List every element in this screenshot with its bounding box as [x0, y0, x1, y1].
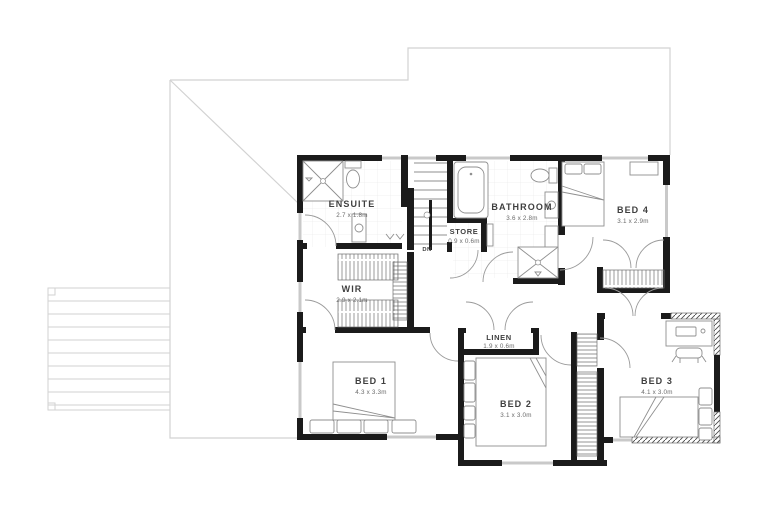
linen-door-right	[505, 302, 533, 330]
bathroom-shower	[518, 247, 558, 278]
room-label-linen: LINEN 1.9 x 0.6m	[483, 333, 514, 350]
bed1	[310, 362, 416, 433]
bathroom-toilet	[531, 168, 557, 183]
wir-name: WIR	[342, 284, 363, 294]
floor-plan-svg: DN	[0, 0, 768, 512]
bed2-name: BED 2	[500, 399, 532, 409]
bed2-dims: 3.1 x 3.0m	[500, 412, 531, 419]
bed3-desk	[666, 321, 712, 363]
bed4-robe-door-left	[603, 240, 631, 268]
room-label-wir: WIR 2.9 x 2.1m	[336, 284, 367, 304]
bed4-name: BED 4	[617, 205, 649, 215]
room-label-bed4: BED 4 3.1 x 2.9m	[617, 205, 649, 225]
linen-door-left	[466, 302, 494, 330]
wir-robe-bottom	[338, 300, 398, 327]
bed3-dims: 4.1 x 3.0m	[641, 389, 672, 396]
linen-name: LINEN	[486, 333, 512, 342]
bed3-robe-upper	[577, 334, 597, 366]
wir-dims: 2.9 x 2.1m	[336, 297, 367, 304]
ensuite-name: ENSUITE	[329, 199, 376, 209]
deck	[48, 288, 170, 410]
bed3-name: BED 3	[641, 376, 673, 386]
store-name: STORE	[450, 227, 479, 236]
wir-robe-top	[338, 254, 398, 280]
ensuite-shower	[303, 161, 343, 201]
bed4-door	[560, 237, 593, 270]
wir-robe-right	[393, 262, 407, 320]
bathroom-dims: 3.6 x 2.8m	[506, 215, 537, 222]
ensuite-dims: 2.7 x 1.8m	[336, 212, 367, 219]
floor-plan-canvas: DN	[0, 0, 768, 512]
bathtub	[454, 162, 488, 218]
wir-door	[305, 300, 335, 330]
bed3-robe-door	[600, 338, 630, 368]
bed4-dims: 3.1 x 2.9m	[617, 218, 648, 225]
ensuite-toilet	[345, 161, 361, 188]
bed1-name: BED 1	[355, 376, 387, 386]
linen-dims: 1.9 x 0.6m	[483, 343, 514, 350]
bed2-robe	[577, 372, 597, 456]
bed1-dims: 4.3 x 3.3m	[355, 389, 386, 396]
bed4	[562, 162, 658, 226]
store-shelf	[487, 224, 493, 246]
store-dims: 0.9 x 0.6m	[448, 238, 479, 245]
bathroom-name: BATHROOM	[491, 202, 552, 212]
stairs-dn-label: DN	[422, 247, 431, 253]
bed1-door	[430, 333, 458, 361]
bed4-robe-door-right	[636, 240, 664, 268]
room-label-bed3: BED 3 4.1 x 3.0m	[641, 376, 673, 396]
bed4-robe	[603, 270, 664, 288]
